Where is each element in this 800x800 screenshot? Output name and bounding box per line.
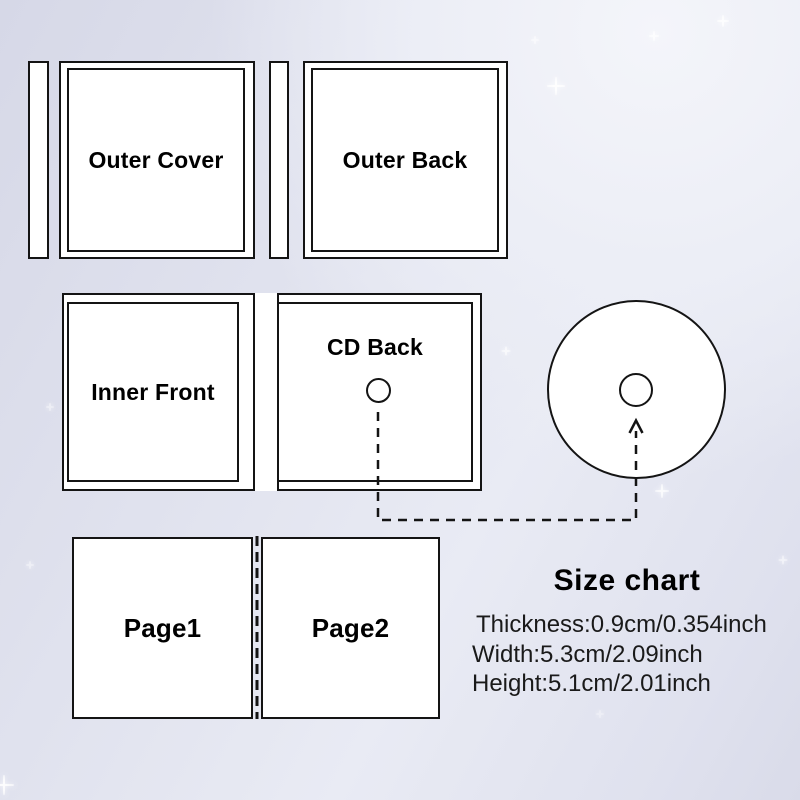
sparkle xyxy=(0,775,14,795)
sparkle xyxy=(547,77,565,95)
product-diagram: Outer Cover Outer Back Inner Front CD Ba… xyxy=(0,0,800,800)
size-chart-width: Width:5.3cm/2.09inch xyxy=(462,640,792,670)
size-chart-height: Height:5.1cm/2.01inch xyxy=(462,669,792,699)
middle-spine-strip xyxy=(269,61,289,259)
page1-label: Page1 xyxy=(124,613,202,644)
sparkle xyxy=(655,484,669,498)
cd-back-label: CD Back xyxy=(277,334,473,361)
sparkle xyxy=(717,15,729,27)
size-chart-title: Size chart xyxy=(462,563,792,599)
sparkle xyxy=(501,346,510,355)
sparkle xyxy=(26,561,34,569)
page2-label: Page2 xyxy=(312,613,390,644)
sparkle xyxy=(531,36,539,44)
sparkle xyxy=(46,403,54,411)
sparkle xyxy=(649,31,659,41)
outer-cover-label: Outer Cover xyxy=(88,147,223,174)
page1-panel: Page1 xyxy=(72,537,253,719)
sparkle xyxy=(596,710,604,718)
left-spine-strip xyxy=(28,61,49,259)
size-chart-thickness: Thickness:0.9cm/0.354inch xyxy=(462,610,792,640)
outer-back-inner-panel: Outer Back xyxy=(311,68,499,252)
cd-disc-center-hole-icon xyxy=(619,373,653,407)
page2-panel: Page2 xyxy=(261,537,440,719)
inner-front-label: Inner Front xyxy=(91,379,215,406)
outer-cover-inner-panel: Outer Cover xyxy=(67,68,245,252)
size-chart: Size chart Thickness:0.9cm/0.354inch Wid… xyxy=(462,563,792,699)
cd-back-hub-hole-icon xyxy=(366,378,391,403)
inner-front-panel: Inner Front xyxy=(67,302,239,482)
hinge-strip xyxy=(253,293,279,491)
outer-back-label: Outer Back xyxy=(343,147,468,174)
